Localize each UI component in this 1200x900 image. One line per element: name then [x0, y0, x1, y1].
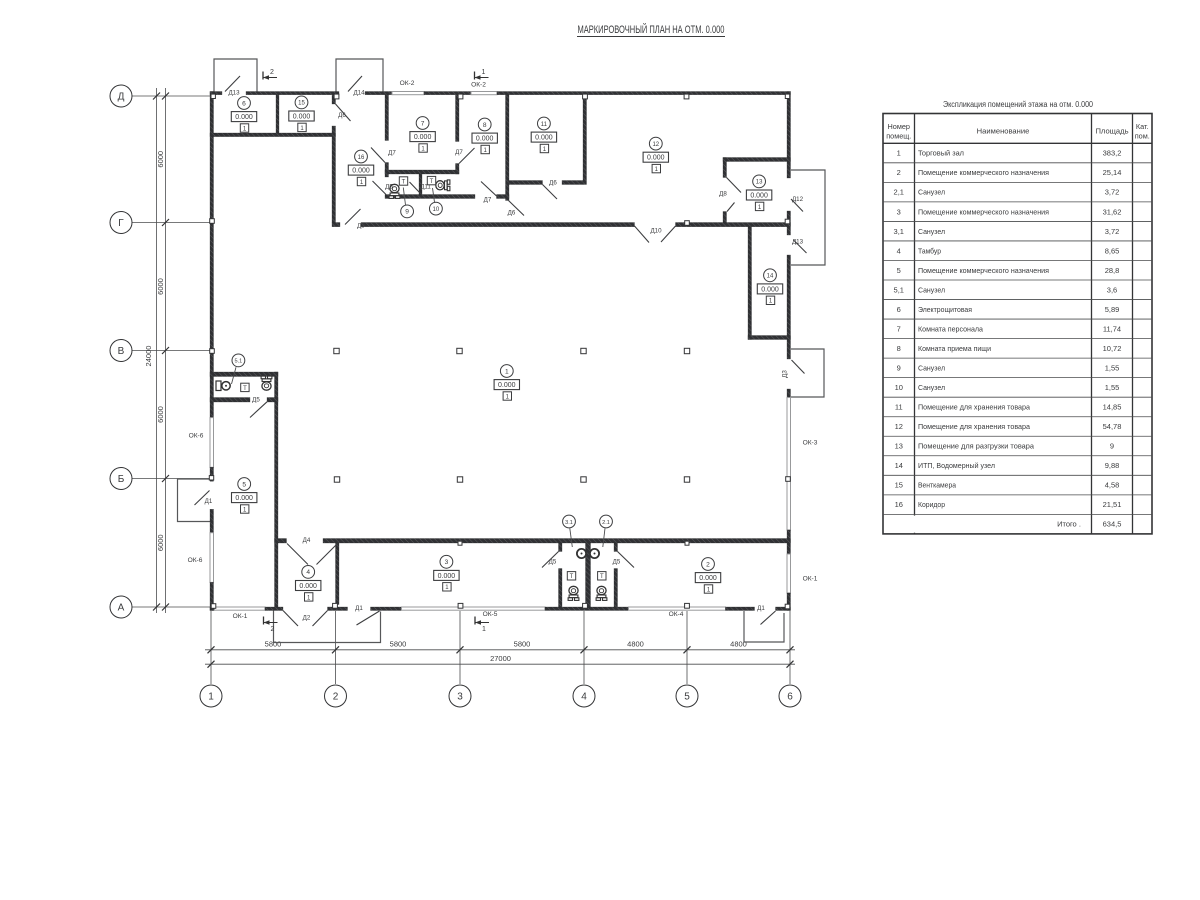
svg-text:ОК-5: ОК-5 [483, 611, 498, 618]
svg-text:1,55: 1,55 [1105, 363, 1120, 372]
svg-text:МАРКИРОВОЧНЫЙ ПЛАН НА ОТМ. 0.0: МАРКИРОВОЧНЫЙ ПЛАН НА ОТМ. 0.000 [578, 23, 725, 36]
svg-text:ОК-6: ОК-6 [189, 433, 204, 440]
svg-text:Номер: Номер [888, 122, 910, 131]
svg-text:Д5: Д5 [252, 397, 260, 404]
svg-text:11: 11 [541, 122, 548, 128]
svg-text:Помещение коммерческого назнач: Помещение коммерческого назначения [918, 207, 1049, 216]
svg-text:5800: 5800 [390, 640, 407, 649]
svg-text:Итого .: Итого . [1057, 520, 1081, 529]
svg-text:Санузел: Санузел [918, 188, 945, 197]
svg-text:Торговый зал: Торговый зал [918, 149, 964, 158]
svg-text:5.1: 5.1 [235, 359, 243, 365]
svg-text:3.1: 3.1 [565, 520, 573, 526]
svg-text:3,72: 3,72 [1105, 227, 1120, 236]
svg-text:16: 16 [358, 155, 365, 161]
svg-text:ОК-1: ОК-1 [803, 576, 818, 583]
svg-text:9: 9 [1110, 442, 1114, 451]
svg-text:0.000: 0.000 [438, 573, 456, 580]
svg-text:Д12: Д12 [792, 196, 804, 203]
svg-text:1: 1 [482, 626, 486, 633]
svg-text:1: 1 [897, 149, 901, 158]
svg-text:4: 4 [897, 246, 901, 255]
svg-text:Комната приема пищи: Комната приема пищи [918, 344, 991, 353]
svg-text:Т: Т [430, 179, 434, 185]
svg-text:14: 14 [767, 274, 774, 280]
svg-text:2: 2 [897, 168, 901, 177]
svg-text:Д4: Д4 [303, 537, 311, 544]
svg-text:4: 4 [581, 692, 587, 703]
svg-text:Венткамера: Венткамера [918, 481, 957, 490]
svg-text:пом.: пом. [1135, 132, 1150, 141]
svg-text:12: 12 [652, 142, 659, 148]
svg-text:8: 8 [897, 344, 901, 353]
svg-text:Д5: Д5 [613, 559, 621, 566]
svg-text:ОК-3: ОК-3 [803, 440, 818, 447]
svg-text:11,74: 11,74 [1103, 324, 1121, 333]
svg-text:10: 10 [895, 383, 903, 392]
svg-text:6000: 6000 [156, 406, 165, 423]
svg-text:0.000: 0.000 [647, 155, 665, 162]
svg-text:0.000: 0.000 [535, 135, 553, 142]
svg-text:0.000: 0.000 [235, 114, 253, 121]
svg-text:ОК-4: ОК-4 [669, 611, 684, 618]
svg-text:0.000: 0.000 [761, 286, 779, 293]
svg-text:0.000: 0.000 [498, 382, 516, 389]
svg-text:21,51: 21,51 [1103, 500, 1122, 509]
svg-text:Коридор: Коридор [918, 500, 945, 509]
svg-text:Тамбур: Тамбур [918, 246, 941, 255]
svg-text:ОК-6: ОК-6 [188, 557, 203, 564]
svg-text:Экспликация помещений этажа на: Экспликация помещений этажа на отм. 0.00… [943, 100, 1093, 109]
svg-text:ИТП, Водомерный узел: ИТП, Водомерный узел [918, 461, 995, 470]
svg-text:5,89: 5,89 [1105, 305, 1120, 314]
svg-text:4800: 4800 [627, 640, 644, 649]
svg-text:Т: Т [402, 179, 406, 185]
svg-text:28,8: 28,8 [1105, 266, 1120, 275]
svg-text:10: 10 [433, 207, 440, 213]
svg-text:Д3: Д3 [782, 370, 789, 378]
svg-text:Д10: Д10 [650, 228, 662, 235]
svg-text:Д13: Д13 [792, 239, 804, 246]
svg-text:7: 7 [897, 324, 901, 333]
svg-text:2,1: 2,1 [894, 188, 904, 197]
svg-text:6: 6 [242, 100, 246, 107]
svg-text:Помещение для хранения товара: Помещение для хранения товара [918, 422, 1031, 431]
svg-text:4: 4 [306, 569, 310, 576]
svg-text:Т: Т [243, 386, 247, 392]
svg-text:5: 5 [897, 266, 901, 275]
svg-text:27000: 27000 [490, 654, 511, 663]
svg-text:Т: Т [570, 574, 574, 580]
svg-text:Д5: Д5 [549, 559, 557, 566]
svg-text:Д9: Д9 [357, 223, 365, 230]
svg-text:Д8: Д8 [719, 191, 727, 198]
svg-text:15: 15 [298, 101, 305, 107]
svg-text:4,58: 4,58 [1105, 481, 1120, 490]
svg-text:Д7: Д7 [455, 149, 463, 156]
svg-text:6: 6 [897, 305, 901, 314]
svg-text:3: 3 [457, 692, 463, 703]
svg-text:13: 13 [895, 442, 903, 451]
svg-text:5: 5 [684, 692, 690, 703]
svg-text:Кат.: Кат. [1136, 122, 1149, 131]
svg-text:Площадь: Площадь [1095, 127, 1128, 136]
svg-text:7: 7 [421, 120, 425, 127]
svg-text:0.000: 0.000 [293, 114, 311, 121]
svg-text:В: В [118, 346, 125, 357]
svg-text:0.000: 0.000 [235, 495, 253, 502]
svg-text:24000: 24000 [144, 346, 153, 367]
svg-text:14,85: 14,85 [1103, 403, 1122, 412]
svg-text:Д7: Д7 [484, 197, 492, 204]
svg-text:Д14: Д14 [353, 90, 365, 97]
svg-text:Санузел: Санузел [918, 285, 945, 294]
svg-text:2.1: 2.1 [602, 520, 610, 526]
svg-text:Д6: Д6 [549, 180, 557, 187]
svg-text:13: 13 [756, 180, 763, 186]
svg-text:Д1: Д1 [205, 498, 213, 505]
svg-text:15: 15 [895, 481, 903, 490]
svg-text:3,1: 3,1 [894, 227, 904, 236]
svg-text:5800: 5800 [514, 640, 531, 649]
svg-text:16: 16 [895, 500, 903, 509]
svg-text:1: 1 [505, 368, 509, 375]
svg-text:0.000: 0.000 [299, 583, 317, 590]
svg-text:2: 2 [271, 626, 275, 633]
svg-text:0.000: 0.000 [750, 193, 768, 200]
svg-text:Д6: Д6 [508, 210, 516, 217]
svg-text:0.000: 0.000 [352, 168, 370, 175]
svg-text:Наименование: Наименование [977, 127, 1030, 136]
svg-text:Санузел: Санузел [918, 363, 945, 372]
svg-text:ОК-2: ОК-2 [400, 80, 415, 87]
svg-text:8: 8 [483, 122, 487, 129]
svg-text:5,1: 5,1 [894, 285, 904, 294]
svg-text:помещ.: помещ. [886, 132, 911, 141]
svg-text:Помещение коммерческого назнач: Помещение коммерческого назначения [918, 168, 1049, 177]
svg-text:Помещение коммерческого назнач: Помещение коммерческого назначения [918, 266, 1049, 275]
svg-text:1: 1 [482, 69, 486, 76]
svg-text:10,72: 10,72 [1103, 344, 1122, 353]
svg-text:0.000: 0.000 [476, 136, 494, 143]
svg-text:Помещение для хранения товара: Помещение для хранения товара [918, 403, 1031, 412]
svg-text:383,2: 383,2 [1103, 149, 1122, 158]
svg-text:25,14: 25,14 [1103, 168, 1122, 177]
svg-text:Д13: Д13 [228, 90, 240, 97]
svg-text:А: А [118, 603, 125, 614]
svg-text:Д5: Д5 [385, 184, 393, 191]
svg-text:6000: 6000 [156, 278, 165, 295]
svg-text:Т: Т [600, 574, 604, 580]
svg-text:3: 3 [445, 559, 449, 566]
svg-text:3: 3 [897, 207, 901, 216]
svg-text:Комната персонала: Комната персонала [918, 324, 984, 333]
svg-text:634,5: 634,5 [1103, 520, 1122, 529]
svg-text:Санузел: Санузел [918, 383, 945, 392]
svg-text:9: 9 [405, 209, 409, 216]
svg-text:3,72: 3,72 [1105, 188, 1120, 197]
svg-text:8,65: 8,65 [1105, 246, 1120, 255]
svg-text:Электрощитовая: Электрощитовая [918, 305, 972, 314]
svg-text:11: 11 [895, 403, 903, 412]
svg-text:Д7: Д7 [388, 150, 396, 157]
svg-text:Помещение для разгрузки товара: Помещение для разгрузки товара [918, 442, 1035, 451]
svg-text:Д2: Д2 [303, 615, 311, 622]
svg-text:5: 5 [242, 481, 246, 488]
svg-text:12: 12 [895, 422, 903, 431]
svg-text:Б: Б [118, 474, 125, 485]
svg-text:3,6: 3,6 [1107, 285, 1117, 294]
svg-text:ОК-1: ОК-1 [233, 613, 248, 620]
svg-text:Д1: Д1 [757, 605, 765, 612]
svg-text:9: 9 [897, 363, 901, 372]
svg-text:0.000: 0.000 [699, 575, 717, 582]
svg-text:Д: Д [118, 92, 125, 103]
svg-text:2: 2 [270, 69, 274, 76]
svg-text:ОК-2: ОК-2 [471, 81, 486, 88]
svg-text:1: 1 [208, 692, 214, 703]
svg-text:Д6: Д6 [338, 112, 346, 119]
svg-text:Г: Г [118, 218, 124, 229]
svg-text:6000: 6000 [156, 151, 165, 168]
svg-text:54,78: 54,78 [1103, 422, 1122, 431]
svg-text:Санузел: Санузел [918, 227, 945, 236]
svg-text:2: 2 [333, 692, 339, 703]
svg-text:Д1: Д1 [355, 605, 363, 612]
svg-text:0.000: 0.000 [414, 134, 432, 141]
svg-text:6000: 6000 [156, 534, 165, 551]
svg-text:31,62: 31,62 [1103, 207, 1122, 216]
svg-text:2: 2 [706, 561, 710, 568]
svg-text:6: 6 [787, 692, 793, 703]
svg-text:9,88: 9,88 [1105, 461, 1120, 470]
svg-text:14: 14 [895, 461, 903, 470]
svg-text:1,55: 1,55 [1105, 383, 1120, 392]
